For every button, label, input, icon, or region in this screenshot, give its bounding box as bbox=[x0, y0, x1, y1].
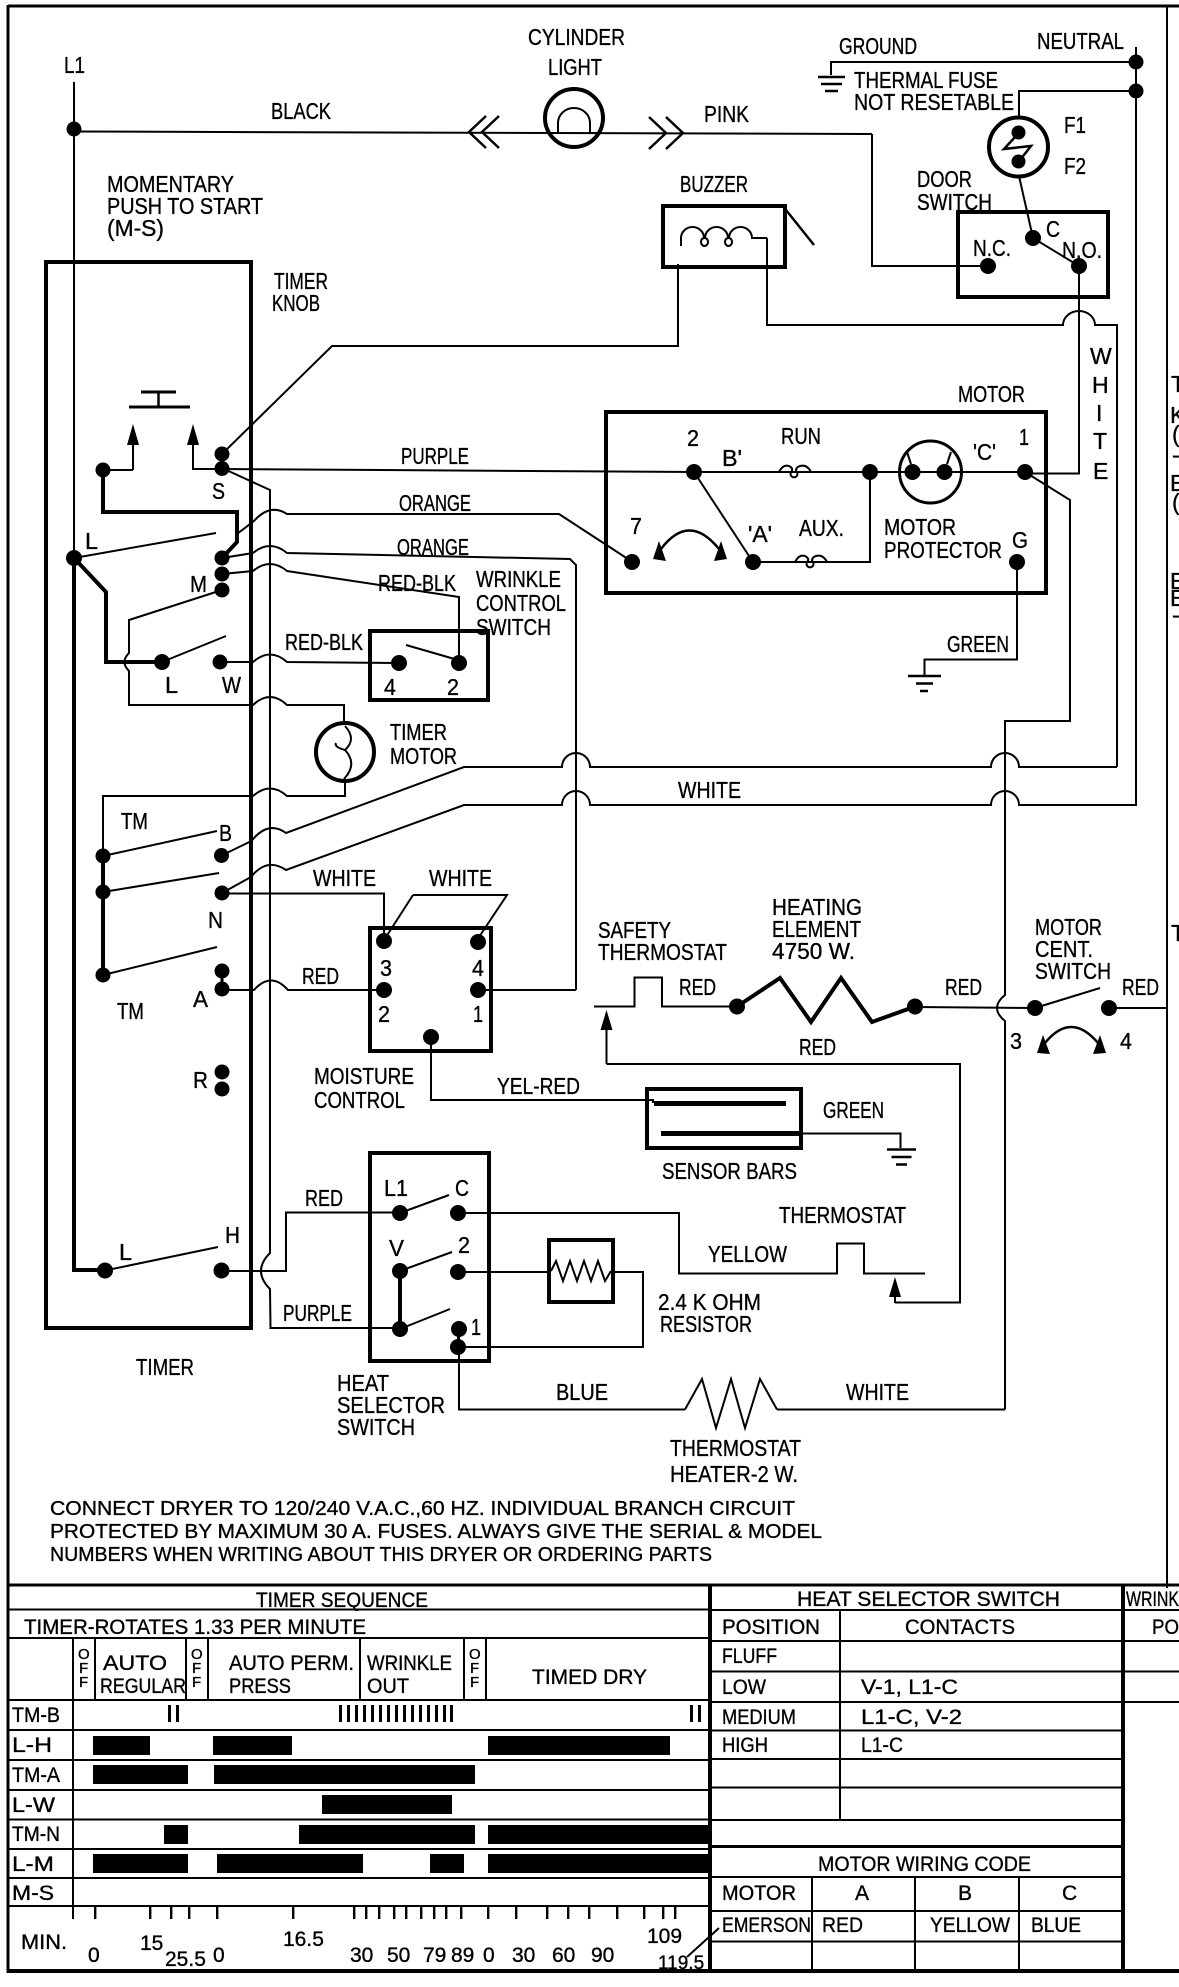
svg-text:BUZZER: BUZZER bbox=[680, 171, 748, 197]
svg-text:RED-BLK: RED-BLK bbox=[285, 629, 364, 655]
svg-text:TM: TM bbox=[117, 998, 144, 1024]
svg-text:RED: RED bbox=[822, 1914, 863, 1937]
svg-text:L: L bbox=[119, 1239, 132, 1265]
svg-text:90: 90 bbox=[591, 1944, 614, 1967]
svg-text:0: 0 bbox=[213, 1944, 225, 1967]
svg-text:B: B bbox=[219, 820, 232, 846]
svg-text:F2: F2 bbox=[1064, 153, 1086, 179]
svg-text:POSITION: POSITION bbox=[722, 1616, 820, 1639]
svg-text:YELLOW: YELLOW bbox=[930, 1914, 1010, 1937]
svg-text:SENSOR BARS: SENSOR BARS bbox=[662, 1158, 797, 1184]
svg-text:G: G bbox=[1012, 527, 1028, 553]
svg-text:V-1, L1-C: V-1, L1-C bbox=[861, 1676, 958, 1699]
svg-text:NOT RESETABLE: NOT RESETABLE bbox=[854, 89, 1014, 115]
svg-text:1: 1 bbox=[473, 1001, 483, 1027]
svg-text:N: N bbox=[208, 907, 223, 933]
svg-text:4: 4 bbox=[384, 674, 396, 700]
svg-text:3: 3 bbox=[380, 955, 392, 981]
svg-text:MOTOR: MOTOR bbox=[722, 1882, 796, 1905]
svg-text:N.C.: N.C. bbox=[973, 235, 1011, 261]
svg-text:BLACK: BLACK bbox=[271, 98, 332, 124]
svg-text:L1: L1 bbox=[64, 52, 85, 78]
svg-text:F: F bbox=[470, 1674, 479, 1691]
svg-text:RED-BLK: RED-BLK bbox=[378, 570, 457, 596]
svg-text:E: E bbox=[1093, 458, 1108, 484]
svg-text:C: C bbox=[1046, 216, 1060, 242]
svg-text:F: F bbox=[79, 1674, 88, 1691]
svg-text:MOTOR: MOTOR bbox=[390, 743, 457, 769]
svg-text:L: L bbox=[85, 528, 98, 554]
svg-text:TM-B: TM-B bbox=[12, 1704, 60, 1727]
svg-text:S: S bbox=[212, 478, 225, 504]
svg-text:MOTOR WIRING CODE: MOTOR WIRING CODE bbox=[818, 1853, 1031, 1876]
svg-text:R: R bbox=[193, 1067, 208, 1093]
svg-text:F: F bbox=[192, 1674, 201, 1691]
svg-text:L1-C, V-2: L1-C, V-2 bbox=[861, 1706, 962, 1729]
svg-text:(: ( bbox=[1172, 489, 1179, 515]
svg-text:LOW: LOW bbox=[722, 1676, 766, 1699]
svg-text:PURPLE: PURPLE bbox=[283, 1300, 352, 1326]
svg-text:PINK: PINK bbox=[704, 101, 750, 127]
svg-text:CONNECT DRYER TO 120/240 V.A.C: CONNECT DRYER TO 120/240 V.A.C.,60 HZ. I… bbox=[50, 1498, 795, 1520]
svg-text:CYLINDER: CYLINDER bbox=[528, 24, 625, 50]
svg-text:2: 2 bbox=[687, 425, 699, 451]
svg-text:W: W bbox=[1090, 343, 1112, 369]
svg-text:L1: L1 bbox=[384, 1175, 408, 1201]
svg-text:I: I bbox=[1096, 400, 1102, 426]
svg-text:89: 89 bbox=[451, 1944, 474, 1967]
svg-text:T: T bbox=[1171, 371, 1179, 397]
svg-text:(M-S): (M-S) bbox=[107, 215, 164, 241]
svg-text:MOTOR: MOTOR bbox=[958, 381, 1025, 407]
svg-text:YELLOW: YELLOW bbox=[708, 1241, 787, 1267]
svg-text:H: H bbox=[225, 1222, 240, 1248]
svg-text:RED: RED bbox=[302, 963, 339, 989]
svg-text:16.5: 16.5 bbox=[283, 1928, 324, 1951]
svg-text:WHITE: WHITE bbox=[313, 865, 376, 891]
svg-text:WRINKLE: WRINKLE bbox=[476, 566, 561, 592]
svg-text:WHITE: WHITE bbox=[678, 777, 741, 803]
svg-text:OUT: OUT bbox=[367, 1675, 409, 1698]
svg-text:PO: PO bbox=[1152, 1616, 1179, 1639]
svg-text:L-W: L-W bbox=[12, 1794, 55, 1817]
svg-text:WHITE: WHITE bbox=[846, 1379, 909, 1405]
svg-text:L-H: L-H bbox=[12, 1734, 52, 1757]
svg-text:2: 2 bbox=[378, 1001, 390, 1027]
svg-text:F1: F1 bbox=[1064, 112, 1086, 138]
svg-text:30: 30 bbox=[512, 1944, 535, 1967]
svg-text:30: 30 bbox=[350, 1944, 373, 1967]
svg-text:RED: RED bbox=[1122, 974, 1159, 1000]
svg-text:KNOB: KNOB bbox=[272, 290, 320, 316]
svg-text:W: W bbox=[222, 672, 241, 698]
svg-text:A: A bbox=[193, 986, 209, 1012]
svg-text:TM: TM bbox=[121, 808, 148, 834]
svg-text:-: - bbox=[1172, 442, 1179, 468]
svg-text:TIMED DRY: TIMED DRY bbox=[532, 1666, 647, 1689]
svg-text:THERMOSTAT: THERMOSTAT bbox=[779, 1202, 906, 1228]
svg-text:C: C bbox=[1062, 1882, 1077, 1905]
svg-text:CONTACTS: CONTACTS bbox=[905, 1616, 1015, 1639]
svg-text:50: 50 bbox=[387, 1944, 410, 1967]
svg-text:A: A bbox=[855, 1882, 869, 1905]
svg-text:'A': 'A' bbox=[748, 521, 772, 547]
svg-text:T: T bbox=[1171, 920, 1179, 946]
svg-text:1: 1 bbox=[471, 1314, 481, 1340]
svg-text:119.5: 119.5 bbox=[658, 1953, 704, 1974]
svg-text:REGULAR: REGULAR bbox=[100, 1675, 186, 1698]
svg-text:4: 4 bbox=[1120, 1028, 1132, 1054]
svg-text:60: 60 bbox=[552, 1944, 575, 1967]
svg-text:HEATER-2 W.: HEATER-2 W. bbox=[670, 1461, 798, 1487]
svg-text:4: 4 bbox=[472, 955, 484, 981]
svg-text:L1-C: L1-C bbox=[861, 1734, 903, 1757]
svg-text:GREEN: GREEN bbox=[947, 631, 1009, 657]
svg-text:0: 0 bbox=[483, 1944, 495, 1967]
svg-text:M-S: M-S bbox=[12, 1882, 54, 1905]
svg-text:FLUFF: FLUFF bbox=[722, 1645, 777, 1668]
svg-text:TM-N: TM-N bbox=[12, 1823, 60, 1846]
svg-text:PURPLE: PURPLE bbox=[401, 443, 469, 469]
svg-text:TIMER: TIMER bbox=[390, 719, 447, 745]
svg-text:V: V bbox=[389, 1235, 405, 1261]
svg-text:HIGH: HIGH bbox=[722, 1734, 768, 1757]
svg-text:109: 109 bbox=[647, 1925, 682, 1948]
svg-text:RESISTOR: RESISTOR bbox=[660, 1311, 752, 1337]
svg-text:B: B bbox=[958, 1882, 972, 1905]
svg-text:GREEN: GREEN bbox=[823, 1097, 884, 1123]
svg-text:L-M: L-M bbox=[12, 1853, 54, 1876]
svg-text:79: 79 bbox=[423, 1944, 446, 1967]
svg-text:4750 W.: 4750 W. bbox=[772, 938, 855, 964]
svg-text:'C': 'C' bbox=[973, 439, 996, 465]
svg-text:BLUE: BLUE bbox=[1031, 1914, 1081, 1937]
svg-text:MIN.: MIN. bbox=[21, 1931, 67, 1954]
svg-text:GROUND: GROUND bbox=[839, 33, 917, 59]
svg-text:MEDIUM: MEDIUM bbox=[722, 1706, 796, 1729]
svg-text:C: C bbox=[455, 1175, 469, 1201]
svg-text:LIGHT: LIGHT bbox=[548, 54, 602, 80]
svg-text:NUMBERS WHEN WRITING ABOUT THI: NUMBERS WHEN WRITING ABOUT THIS DRYER OR… bbox=[50, 1544, 712, 1566]
svg-text:CONTROL: CONTROL bbox=[314, 1087, 405, 1113]
svg-text:RED: RED bbox=[799, 1034, 836, 1060]
svg-text:HEAT SELECTOR SWITCH: HEAT SELECTOR SWITCH bbox=[797, 1588, 1060, 1611]
svg-text:WRINK: WRINK bbox=[1126, 1588, 1179, 1611]
svg-text:AUTO: AUTO bbox=[103, 1652, 167, 1675]
svg-text:T: T bbox=[1093, 428, 1107, 454]
svg-text:H: H bbox=[1092, 372, 1109, 398]
svg-text:L: L bbox=[165, 672, 178, 698]
svg-text:TIMER-ROTATES 1.33 PER MINUTE: TIMER-ROTATES 1.33 PER MINUTE bbox=[24, 1616, 366, 1639]
svg-text:PROTECTED BY MAXIMUM 30 A. FUS: PROTECTED BY MAXIMUM 30 A. FUSES. ALWAYS… bbox=[50, 1521, 822, 1543]
svg-text:THERMOSTAT: THERMOSTAT bbox=[598, 939, 727, 965]
svg-text:WRINKLE: WRINKLE bbox=[367, 1652, 452, 1675]
svg-text:TIMER: TIMER bbox=[136, 1354, 194, 1380]
svg-text:-: - bbox=[1172, 602, 1179, 628]
svg-text:MOISTURE: MOISTURE bbox=[314, 1063, 414, 1089]
svg-text:RED: RED bbox=[305, 1185, 343, 1211]
svg-text:RUN: RUN bbox=[781, 423, 821, 449]
svg-text:YEL-RED: YEL-RED bbox=[497, 1073, 580, 1099]
svg-text:0: 0 bbox=[88, 1944, 100, 1967]
svg-text:TM-A: TM-A bbox=[12, 1764, 60, 1787]
svg-text:3: 3 bbox=[1010, 1028, 1022, 1054]
svg-text:15: 15 bbox=[140, 1932, 163, 1955]
svg-text:SWITCH: SWITCH bbox=[1035, 958, 1111, 984]
svg-text:EMERSON: EMERSON bbox=[722, 1914, 811, 1937]
svg-text:B': B' bbox=[722, 445, 742, 471]
svg-text:25.5: 25.5 bbox=[165, 1948, 206, 1971]
svg-text:1: 1 bbox=[1019, 424, 1029, 450]
svg-text:7: 7 bbox=[630, 513, 642, 539]
svg-text:NEUTRAL: NEUTRAL bbox=[1037, 28, 1124, 54]
svg-text:AUX.: AUX. bbox=[799, 515, 844, 541]
svg-text:RED: RED bbox=[945, 974, 982, 1000]
svg-text:M: M bbox=[190, 571, 207, 597]
svg-text:2: 2 bbox=[447, 674, 459, 700]
svg-text:CONTROL: CONTROL bbox=[476, 590, 566, 616]
svg-text:ORANGE: ORANGE bbox=[399, 490, 471, 516]
svg-text:2: 2 bbox=[458, 1232, 470, 1258]
svg-text:PROTECTOR: PROTECTOR bbox=[884, 537, 1002, 563]
svg-text:SWITCH: SWITCH bbox=[337, 1414, 415, 1440]
svg-text:AUTO PERM.: AUTO PERM. bbox=[229, 1652, 354, 1675]
svg-text:BLUE: BLUE bbox=[556, 1379, 608, 1405]
svg-text:WHITE: WHITE bbox=[429, 865, 492, 891]
svg-text:RED: RED bbox=[679, 974, 716, 1000]
svg-text:PRESS: PRESS bbox=[229, 1675, 291, 1698]
svg-text:THERMOSTAT: THERMOSTAT bbox=[670, 1435, 801, 1461]
